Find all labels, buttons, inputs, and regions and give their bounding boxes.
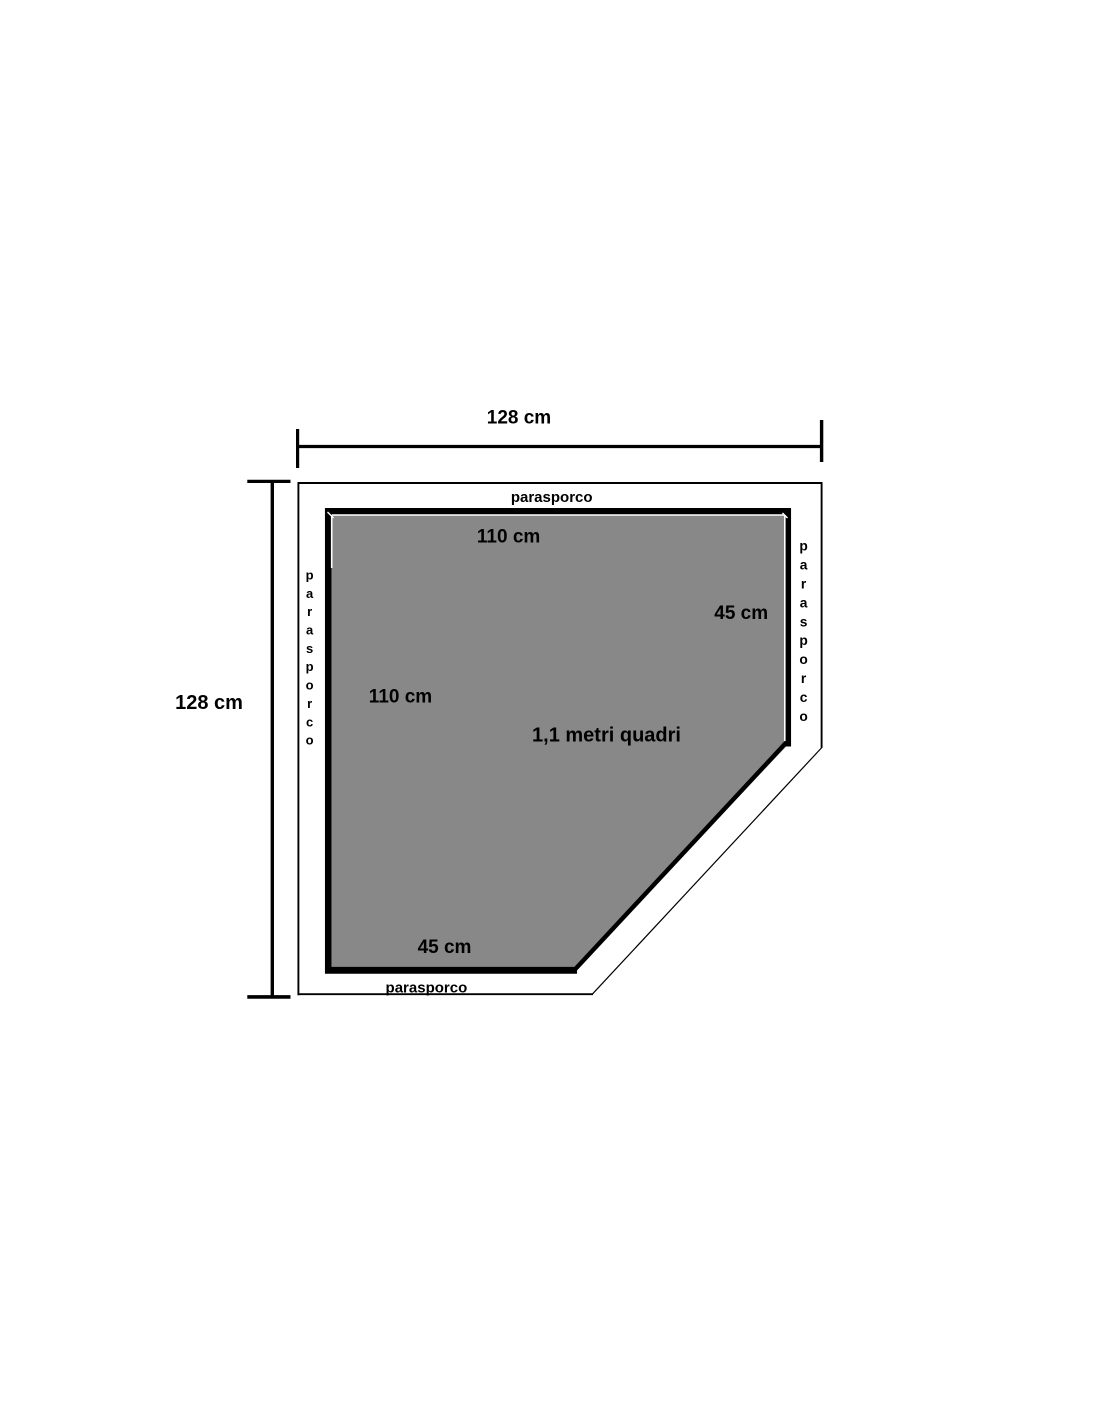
svg-text:r: r [307, 604, 312, 619]
svg-text:parasporco: parasporco [386, 979, 468, 996]
svg-text:p: p [799, 539, 807, 554]
svg-text:o: o [799, 652, 807, 667]
svg-text:p: p [306, 568, 314, 583]
svg-text:s: s [800, 614, 808, 629]
svg-text:parasporco: parasporco [511, 489, 593, 506]
svg-text:a: a [306, 586, 314, 601]
svg-text:1,1 metri quadri: 1,1 metri quadri [532, 724, 681, 746]
svg-text:r: r [801, 577, 807, 592]
svg-text:45 cm: 45 cm [418, 937, 472, 958]
svg-text:c: c [306, 714, 313, 729]
svg-text:45 cm: 45 cm [714, 603, 768, 624]
svg-text:c: c [800, 690, 808, 705]
svg-text:p: p [306, 659, 314, 674]
svg-text:128 cm: 128 cm [487, 408, 551, 429]
svg-text:110 cm: 110 cm [477, 526, 540, 547]
svg-text:s: s [306, 641, 313, 656]
svg-text:a: a [800, 595, 808, 610]
svg-text:a: a [306, 623, 314, 638]
svg-text:o: o [799, 709, 807, 724]
svg-text:128 cm: 128 cm [175, 692, 243, 714]
svg-text:r: r [307, 696, 312, 711]
svg-text:p: p [799, 633, 807, 648]
svg-text:110 cm: 110 cm [369, 687, 432, 708]
svg-text:o: o [306, 678, 314, 693]
svg-text:o: o [306, 733, 314, 748]
svg-text:r: r [801, 671, 807, 686]
svg-text:a: a [800, 558, 808, 573]
